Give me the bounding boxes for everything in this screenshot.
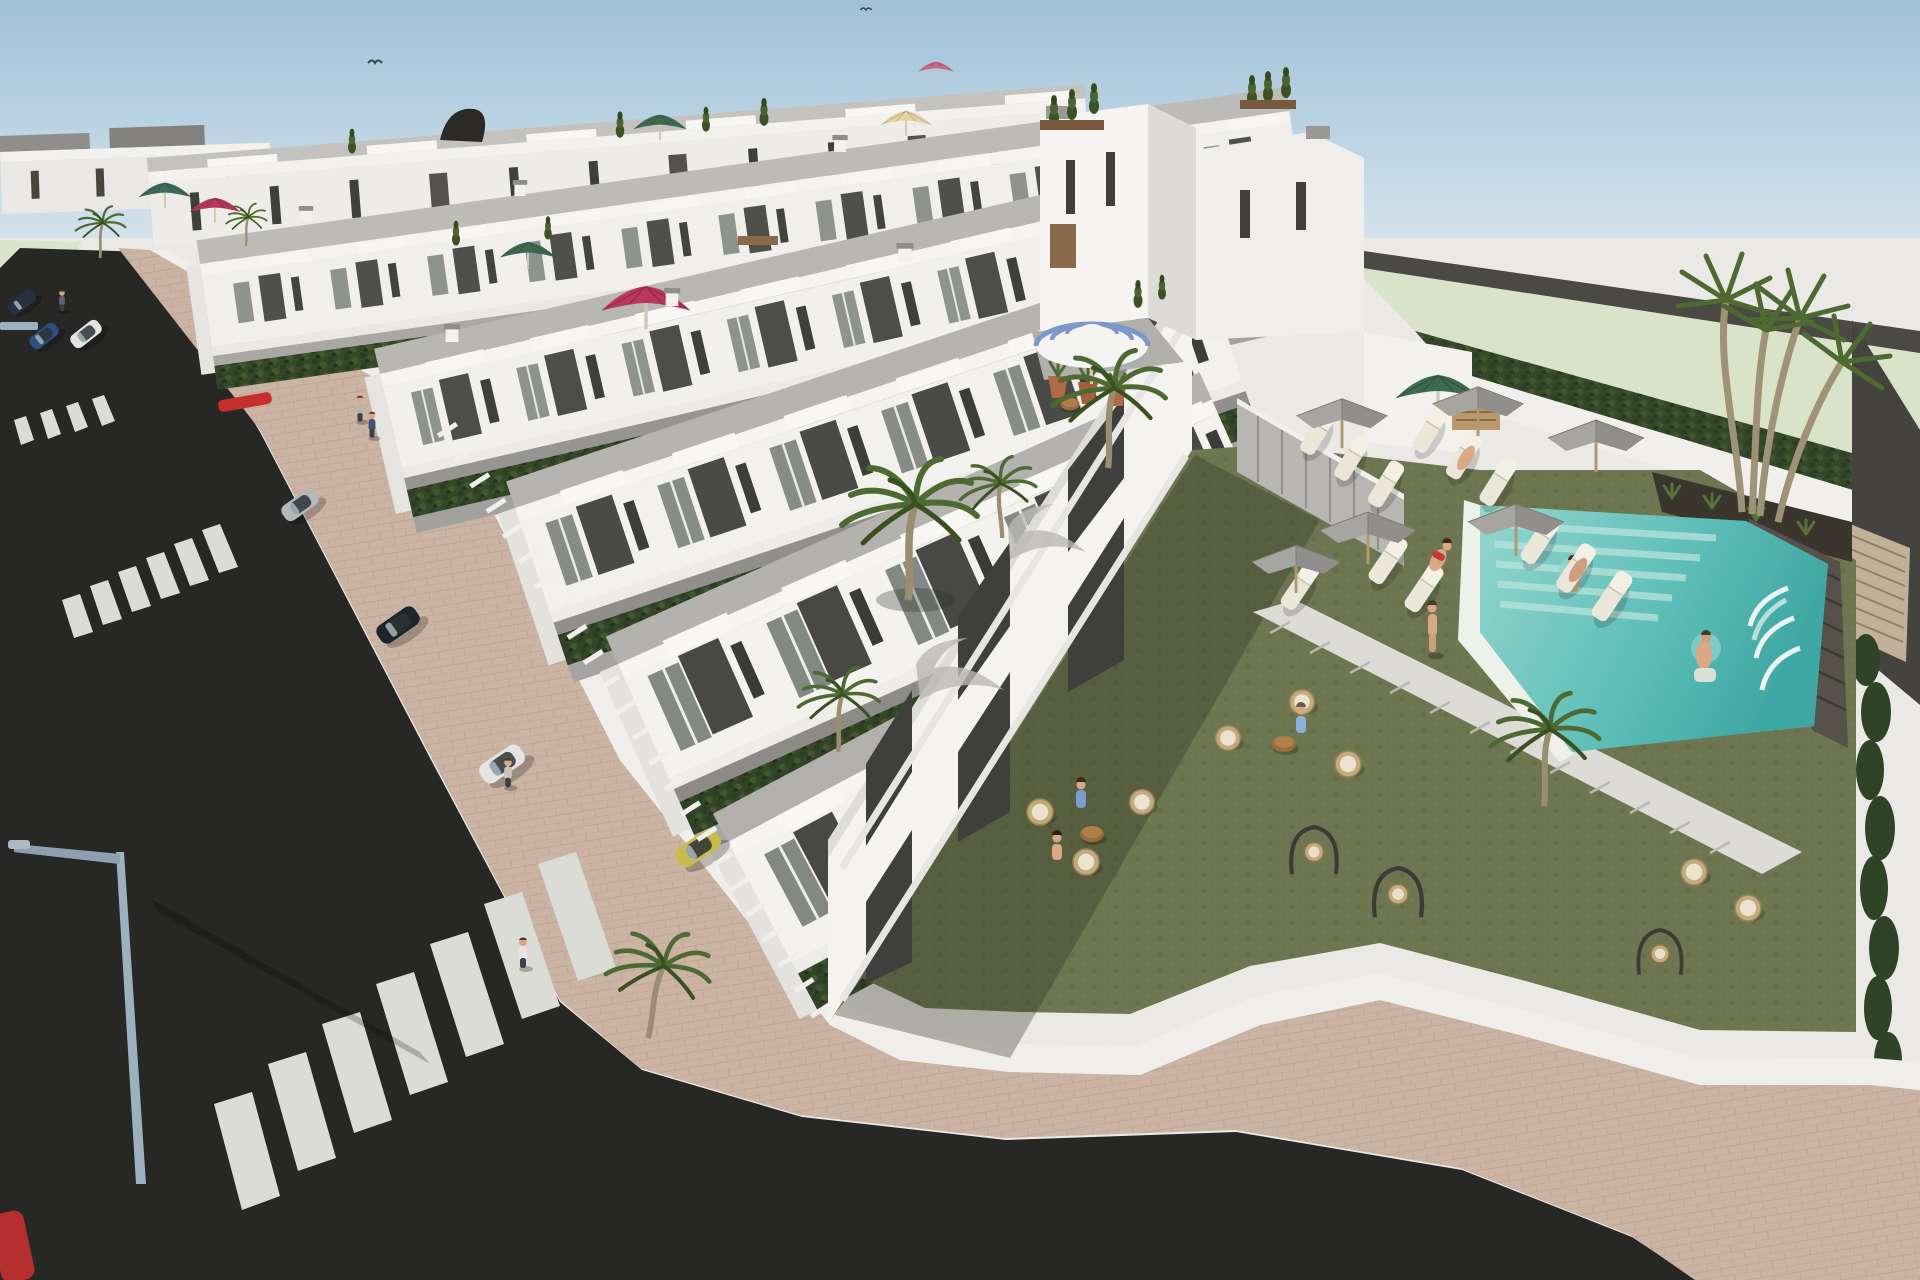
seated-person: [1296, 702, 1306, 733]
street-sign: [0, 322, 38, 330]
seated-person: [1052, 830, 1062, 860]
seated-person: [1076, 777, 1086, 808]
architectural-render: [0, 0, 1920, 1280]
roof-bench: [738, 236, 778, 245]
